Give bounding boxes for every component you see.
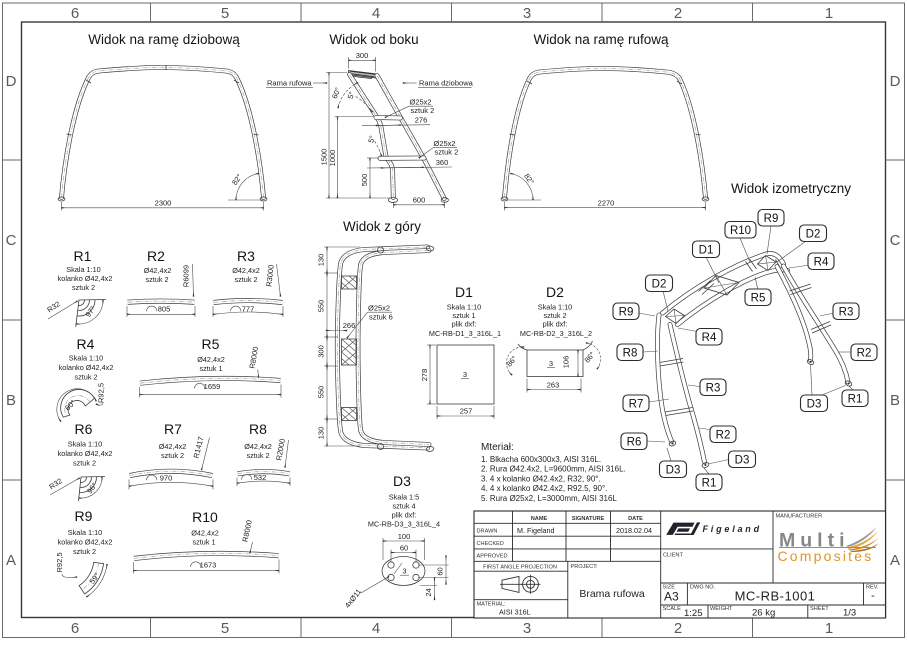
- svg-text:1659: 1659: [204, 382, 221, 391]
- svg-text:kolanko Ø42,4x2: kolanko Ø42,4x2: [58, 274, 113, 283]
- svg-text:Widok na ramę rufową: Widok na ramę rufową: [533, 32, 669, 47]
- svg-text:R3: R3: [706, 383, 721, 395]
- svg-text:NAME: NAME: [531, 516, 548, 522]
- svg-text:R2: R2: [147, 248, 165, 264]
- svg-text:R5: R5: [751, 293, 766, 305]
- svg-text:D2: D2: [806, 229, 821, 241]
- svg-text:plik dxf:: plik dxf:: [452, 320, 477, 329]
- svg-text:Skala 1:10: Skala 1:10: [66, 265, 100, 274]
- svg-text:Skala 1:10: Skala 1:10: [68, 440, 102, 449]
- svg-text:24: 24: [424, 588, 433, 596]
- svg-text:D3: D3: [807, 399, 822, 411]
- svg-text:130: 130: [317, 427, 326, 440]
- svg-text:sztuk 2: sztuk 2: [73, 459, 96, 468]
- svg-text:Widok z góry: Widok z góry: [343, 219, 421, 234]
- svg-text:sztuk 2: sztuk 2: [161, 451, 184, 460]
- svg-text:R9: R9: [619, 307, 634, 319]
- svg-text:Mteriał:: Mteriał:: [481, 442, 514, 453]
- svg-text:Ø42,4x2: Ø42,4x2: [144, 266, 172, 275]
- svg-text:Skala 1:10: Skala 1:10: [69, 354, 103, 363]
- svg-text:1: 1: [825, 620, 833, 637]
- svg-text:6: 6: [71, 620, 79, 637]
- svg-text:R7: R7: [629, 399, 644, 411]
- svg-text:plik dxf:: plik dxf:: [543, 320, 568, 329]
- svg-text:532: 532: [254, 473, 267, 482]
- svg-text:DATE: DATE: [628, 516, 643, 522]
- svg-text:3: 3: [402, 567, 406, 576]
- svg-text:kolanko Ø42,4x2: kolanko Ø42,4x2: [58, 538, 113, 547]
- svg-text:1. Blkacha 600x300x3, AISI 316: 1. Blkacha 600x300x3, AISI 316L.: [481, 455, 601, 464]
- svg-text:805: 805: [158, 305, 171, 314]
- svg-text:R9: R9: [764, 213, 779, 225]
- svg-text:Widok izometryczny: Widok izometryczny: [731, 181, 851, 196]
- svg-text:-: -: [871, 590, 875, 602]
- svg-text:D3: D3: [735, 455, 750, 467]
- svg-text:MC-RB-D1_3_316L_1: MC-RB-D1_3_316L_1: [429, 329, 501, 338]
- svg-text:A: A: [6, 552, 16, 569]
- svg-text:4: 4: [372, 620, 380, 637]
- svg-text:Rama dziobowa: Rama dziobowa: [419, 79, 474, 88]
- svg-text:DWG NO.: DWG NO.: [690, 585, 716, 591]
- svg-text:2018.02.04: 2018.02.04: [616, 526, 652, 535]
- svg-text:3: 3: [549, 359, 553, 368]
- svg-text:sztuk 1: sztuk 1: [199, 364, 222, 373]
- svg-text:R3: R3: [237, 248, 255, 264]
- svg-text:R92,5: R92,5: [97, 383, 106, 403]
- svg-text:D2: D2: [652, 279, 667, 291]
- svg-text:Ø25x2: Ø25x2: [368, 304, 390, 313]
- svg-text:R10: R10: [192, 509, 218, 525]
- svg-text:kolanko Ø42,4x2: kolanko Ø42,4x2: [58, 449, 113, 458]
- svg-text:1000: 1000: [328, 150, 337, 167]
- svg-text:Skala 1:10: Skala 1:10: [68, 528, 102, 537]
- svg-text:sztuk 2: sztuk 2: [145, 275, 168, 284]
- svg-text:SHEET: SHEET: [810, 606, 829, 612]
- svg-text:SCALE: SCALE: [663, 606, 682, 612]
- svg-text:WEIGHT: WEIGHT: [710, 606, 733, 612]
- svg-text:5: 5: [221, 5, 229, 22]
- svg-text:3: 3: [463, 370, 467, 379]
- svg-text:MC-RB-1001: MC-RB-1001: [735, 589, 816, 604]
- svg-text:1:25: 1:25: [684, 608, 703, 619]
- svg-text:266: 266: [343, 321, 356, 330]
- svg-text:Widok od boku: Widok od boku: [329, 32, 418, 47]
- svg-text:M. Figeland: M. Figeland: [517, 526, 555, 535]
- svg-text:plik dxf:: plik dxf:: [392, 511, 417, 520]
- svg-text:AISI 316L: AISI 316L: [499, 608, 531, 617]
- svg-text:R4: R4: [702, 332, 717, 344]
- svg-text:sztuk 2: sztuk 2: [74, 373, 97, 382]
- svg-text:D3: D3: [393, 473, 411, 489]
- svg-text:R1: R1: [702, 478, 717, 490]
- svg-text:sztuk 2: sztuk 2: [73, 547, 96, 556]
- svg-text:R92,5: R92,5: [55, 552, 64, 572]
- svg-text:DRAWN: DRAWN: [477, 528, 498, 534]
- svg-text:D1: D1: [455, 284, 473, 300]
- svg-text:600: 600: [413, 196, 426, 205]
- svg-text:100: 100: [398, 532, 411, 541]
- svg-text:360: 360: [436, 158, 449, 167]
- svg-text:sztuk 2: sztuk 2: [411, 106, 435, 115]
- svg-text:2300: 2300: [155, 199, 172, 208]
- svg-text:D3: D3: [666, 465, 681, 477]
- svg-text:sztuk 2: sztuk 2: [72, 283, 95, 292]
- svg-text:R8: R8: [249, 421, 267, 437]
- svg-text:D2: D2: [546, 284, 564, 300]
- svg-text:C: C: [890, 232, 901, 249]
- svg-text:276: 276: [415, 116, 428, 125]
- svg-text:3. 4 x kolanko Ø42.4x2, R32, 9: 3. 4 x kolanko Ø42.4x2, R32, 90°.: [481, 474, 601, 483]
- svg-text:sztuk 4: sztuk 4: [392, 502, 415, 511]
- svg-text:R8: R8: [623, 348, 638, 360]
- svg-text:300: 300: [356, 51, 369, 60]
- svg-text:263: 263: [547, 380, 560, 389]
- svg-text:R2: R2: [857, 348, 872, 360]
- svg-text:R4: R4: [814, 257, 829, 269]
- svg-text:APPROVED: APPROVED: [477, 554, 508, 560]
- svg-text:PROJECT:: PROJECT:: [571, 564, 598, 570]
- svg-text:sztuk 2: sztuk 2: [246, 451, 269, 460]
- svg-text:R5: R5: [202, 336, 220, 352]
- svg-text:C: C: [6, 232, 17, 249]
- svg-text:Ø42,4x2: Ø42,4x2: [197, 355, 225, 364]
- svg-text:2270: 2270: [598, 198, 615, 207]
- svg-text:Composites: Composites: [778, 548, 874, 564]
- svg-text:2: 2: [674, 5, 682, 22]
- svg-text:MANUFACTURER: MANUFACTURER: [776, 514, 823, 520]
- svg-text:D: D: [6, 73, 17, 90]
- svg-text:R1: R1: [74, 248, 92, 264]
- svg-text:kolanko Ø42,4x2: kolanko Ø42,4x2: [59, 363, 114, 372]
- svg-text:278: 278: [420, 369, 429, 382]
- svg-text:26 kg: 26 kg: [752, 608, 775, 619]
- svg-text:R6099: R6099: [182, 265, 191, 287]
- svg-text:A3: A3: [664, 590, 679, 604]
- svg-text:Brama rufowa: Brama rufowa: [579, 588, 645, 600]
- svg-text:106: 106: [562, 356, 571, 369]
- svg-text:R6: R6: [75, 421, 93, 437]
- svg-text:60: 60: [400, 544, 408, 553]
- svg-text:B: B: [890, 392, 900, 409]
- svg-text:sztuk 1: sztuk 1: [192, 538, 215, 547]
- svg-text:CHECKED: CHECKED: [477, 541, 504, 547]
- svg-text:R9: R9: [75, 508, 93, 524]
- svg-text:Figeland: Figeland: [703, 524, 762, 534]
- svg-text:550: 550: [317, 300, 326, 313]
- svg-text:300: 300: [317, 345, 326, 358]
- svg-text:500: 500: [360, 174, 369, 187]
- svg-text:R7: R7: [164, 421, 182, 437]
- svg-text:Ø42,4x2: Ø42,4x2: [191, 529, 219, 538]
- svg-text:Skala 1:5: Skala 1:5: [389, 493, 419, 502]
- svg-text:5: 5: [221, 620, 229, 637]
- svg-text:1: 1: [825, 5, 833, 22]
- svg-text:550: 550: [317, 386, 326, 399]
- svg-text:sztuk 2: sztuk 2: [435, 148, 459, 157]
- svg-text:Ø42,4x2: Ø42,4x2: [159, 442, 187, 451]
- svg-text:257: 257: [460, 407, 473, 416]
- svg-text:R6: R6: [627, 437, 642, 449]
- svg-text:R4: R4: [77, 336, 95, 352]
- svg-text:R2: R2: [716, 430, 731, 442]
- svg-text:Widok na ramę dziobową: Widok na ramę dziobową: [88, 32, 240, 47]
- svg-text:6: 6: [71, 5, 79, 22]
- svg-text:sztuk 2: sztuk 2: [234, 275, 257, 284]
- svg-text:130: 130: [317, 254, 326, 267]
- svg-text:3: 3: [523, 5, 531, 22]
- svg-text:R1: R1: [848, 394, 863, 406]
- svg-text:60: 60: [436, 567, 445, 575]
- svg-text:MC-RB-D3_3_316L_4: MC-RB-D3_3_316L_4: [368, 520, 440, 529]
- svg-text:1673: 1673: [200, 560, 217, 569]
- svg-text:2: 2: [674, 620, 682, 637]
- svg-text:5. Rura Ø25x2, L=3000mm, AISI: 5. Rura Ø25x2, L=3000mm, AISI 316L: [481, 494, 617, 503]
- svg-text:sztuk 6: sztuk 6: [369, 313, 393, 322]
- svg-text:A: A: [890, 552, 900, 569]
- svg-text:B: B: [6, 392, 16, 409]
- svg-text:CLIENT: CLIENT: [663, 553, 683, 559]
- svg-text:2. Rura Ø42.4x2, L=9600mm, AIS: 2. Rura Ø42.4x2, L=9600mm, AISI 316L.: [481, 465, 626, 474]
- svg-text:3: 3: [523, 620, 531, 637]
- svg-text:D1: D1: [699, 245, 714, 257]
- svg-text:Ø42,4x2: Ø42,4x2: [232, 266, 260, 275]
- svg-text:R3: R3: [839, 307, 854, 319]
- svg-text:4. 4 x kolanko Ø42.4x2, R92.5,: 4. 4 x kolanko Ø42.4x2, R92.5, 90°.: [481, 484, 607, 493]
- svg-text:MC-RB-D2_3_316L_2: MC-RB-D2_3_316L_2: [520, 329, 592, 338]
- svg-text:D: D: [890, 73, 901, 90]
- svg-text:SIGNATURE: SIGNATURE: [572, 516, 605, 522]
- svg-text:4: 4: [372, 5, 380, 22]
- svg-text:R10: R10: [730, 225, 751, 237]
- svg-text:1/3: 1/3: [843, 608, 856, 619]
- svg-text:970: 970: [160, 474, 173, 483]
- svg-text:Ø42,4x2: Ø42,4x2: [244, 442, 272, 451]
- svg-text:Rama rufowa: Rama rufowa: [267, 79, 312, 88]
- svg-text:FIRST ANGLE PROJECTION: FIRST ANGLE PROJECTION: [483, 564, 557, 570]
